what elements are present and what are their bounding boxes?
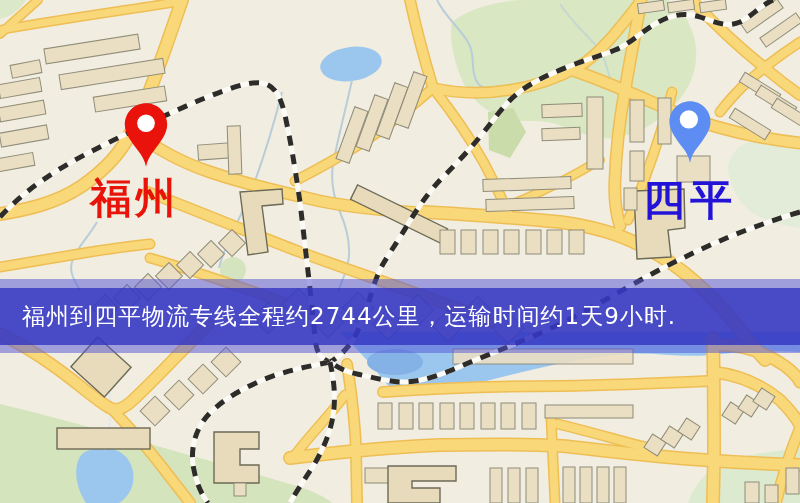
route-info-banner: 福州到四平物流专线全程约2744公里，运输时间约1天9小时. — [0, 288, 800, 345]
map-background — [0, 0, 800, 503]
pond — [76, 448, 133, 503]
destination-label: 四平 — [643, 179, 737, 221]
destination-pin-icon[interactable] — [666, 100, 714, 164]
origin-pin-icon[interactable] — [122, 102, 170, 168]
route-banner-text: 福州到四平物流专线全程约2744公里，运输时间约1天9小时. — [0, 301, 676, 332]
map-canvas[interactable]: 福州 四平 福州到四平物流专线全程约2744公里，运输时间约1天9小时. — [0, 0, 800, 503]
origin-label: 福州 — [90, 178, 180, 219]
